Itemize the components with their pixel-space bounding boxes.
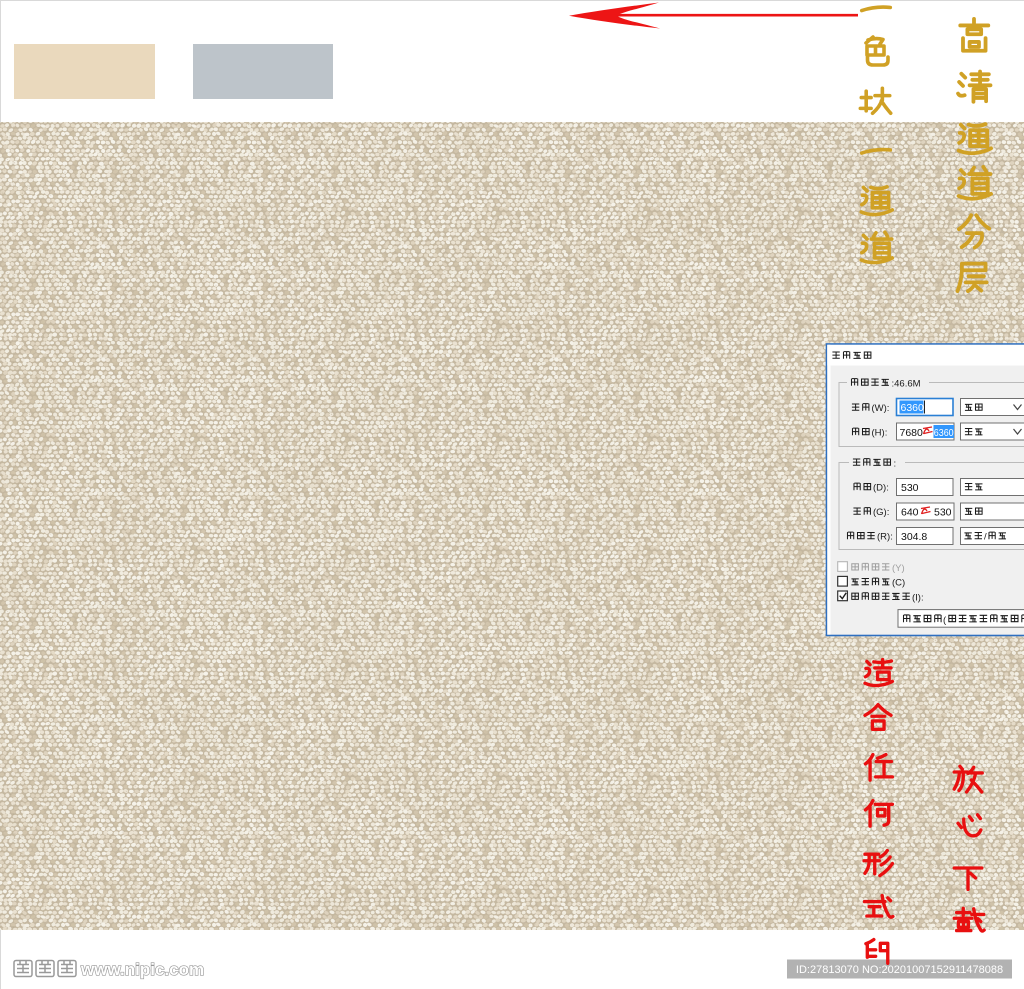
svg-text:6360: 6360: [934, 427, 954, 439]
svg-text:(W):: (W):: [872, 403, 890, 414]
svg-text:530: 530: [901, 482, 919, 494]
svg-text::46.6M: :46.6M: [892, 379, 921, 390]
svg-text::: :: [894, 459, 897, 470]
svg-text:(H):: (H):: [872, 428, 888, 439]
svg-text:(G):: (G):: [873, 507, 889, 518]
svg-text:ID:27813070 NO:202010071529114: ID:27813070 NO:20201007152911478088: [796, 964, 1003, 976]
svg-text:(D):: (D):: [873, 483, 889, 494]
svg-text:6360: 6360: [901, 402, 925, 414]
svg-text:304.8: 304.8: [901, 531, 927, 543]
svg-text:www.nipic.com: www.nipic.com: [80, 960, 204, 979]
svg-text:(I):: (I):: [912, 592, 924, 603]
svg-text:640: 640: [901, 506, 919, 518]
svg-text:(C): (C): [892, 578, 905, 589]
svg-text:7680: 7680: [900, 427, 924, 439]
svg-text:(Y): (Y): [892, 563, 905, 574]
svg-text:(R):: (R):: [877, 532, 893, 543]
svg-text:/: /: [984, 532, 987, 543]
svg-text:530: 530: [934, 506, 952, 518]
